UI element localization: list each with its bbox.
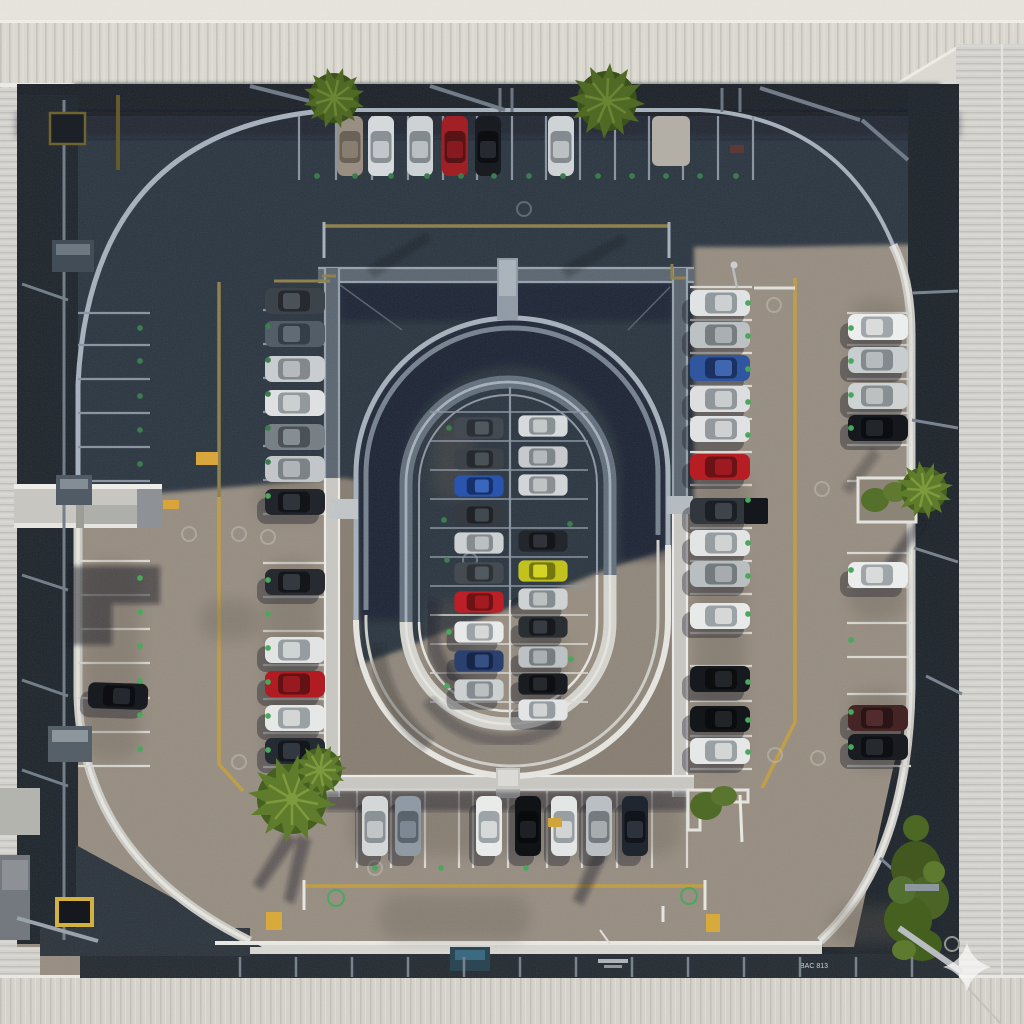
svg-text:BAC 813: BAC 813 xyxy=(800,963,828,970)
